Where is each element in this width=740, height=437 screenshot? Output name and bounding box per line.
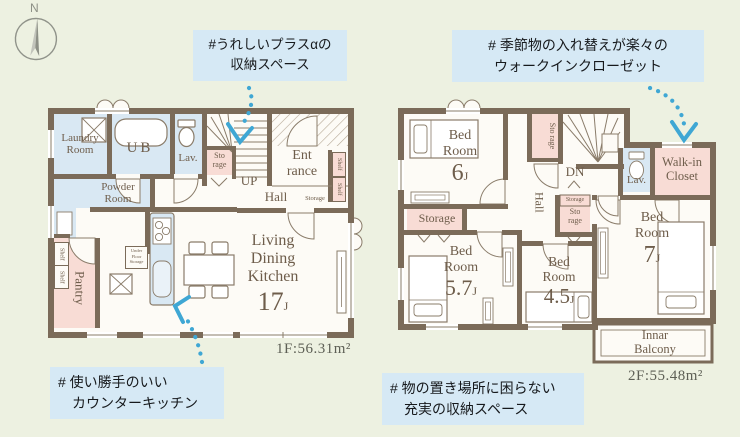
area-label-2f: 2F:55.48m² <box>628 368 703 385</box>
sink-icon <box>153 261 171 297</box>
area-label-1f: 1F:56.31m² <box>276 341 351 358</box>
room-label-lav: Lav. <box>619 174 654 186</box>
shelf-label: Shelf <box>54 265 69 289</box>
floorplan-page: N <box>0 0 740 437</box>
pillow-icon <box>414 304 442 316</box>
room-label-storage-top: Sto rage <box>534 108 556 164</box>
callout-counter-kitchen: # 使い勝手のいい カウンターキッチン <box>50 367 224 419</box>
shelf-label: Shelf <box>332 177 346 202</box>
storage-tag-label: Storage <box>560 197 590 204</box>
toilet-tank-icon <box>178 120 195 127</box>
shelf-label: Shelf <box>332 152 346 177</box>
stairs-down-label: DN <box>560 165 590 180</box>
room-label-storage-mid: Storage <box>560 208 590 226</box>
room-label-powder: PowderRoom <box>86 181 150 206</box>
room-label-storage-left: Storage <box>409 212 465 225</box>
toilet-bowl-icon <box>179 128 194 147</box>
room-label-entrance: Entrance <box>274 148 330 179</box>
room-label-walkin-closet: Walk-inCloset <box>652 155 712 183</box>
double-swing-door-icon <box>97 100 129 108</box>
under-floor-storage-label: Under Floor Storage <box>125 246 148 269</box>
toilet-tank-icon <box>629 152 644 159</box>
room-label-storage-stairs: Storage <box>205 152 234 170</box>
double-swing-door-icon <box>354 218 362 250</box>
storage-small-label: Storage <box>298 195 332 202</box>
room-label-bed57: BedRoom 5.7J <box>422 244 500 301</box>
room-label-hall: Hall <box>532 182 545 222</box>
chair-icon <box>189 242 205 254</box>
callout-walkin-closet: # 季節物の入れ替えが楽々の ウォークインクローゼット <box>452 30 704 82</box>
callout-plus-storage: #うれしいプラスαの 収納スペース <box>193 30 347 81</box>
floor2-plan: BedRoom 6J Sto rage DN Hall Lav. Walk-in… <box>398 108 716 370</box>
room-label-lav: Lav. <box>171 152 205 164</box>
room-label-bed45: BedRoom 4.5J <box>524 254 594 309</box>
room-label-laundry: LaundryRoom <box>52 132 108 157</box>
shelf-label: Shelf <box>54 242 69 266</box>
double-swing-door-icon <box>448 100 480 108</box>
room-label-pantry: Pantry <box>72 256 87 320</box>
room-label-bed7: BedRoom 7J <box>610 210 694 269</box>
compass-icon <box>10 6 66 64</box>
room-label-ub: UB <box>110 140 170 157</box>
room-label-bed6: BedRoom 6J <box>418 128 502 187</box>
callout-rich-storage: # 物の置き場所に困らない 充実の収納スペース <box>382 373 584 425</box>
room-label-inner-balcony: InnarBalcony <box>612 328 698 356</box>
floor1-plan: LaundryRoom UB Lav. Storage UP Entrance … <box>48 108 354 338</box>
room-label-hall: Hall <box>254 190 298 205</box>
chair-icon <box>189 286 205 298</box>
pillow-icon <box>666 296 696 308</box>
counter-shelf-icon <box>57 212 72 235</box>
stairs-up-label: UP <box>234 174 264 189</box>
room-label-ldk: Living Dining Kitchen 17J <box>226 232 320 316</box>
